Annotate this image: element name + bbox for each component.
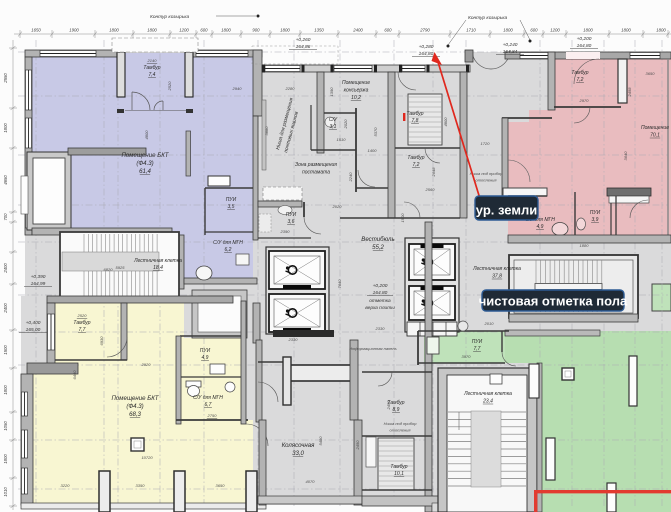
svg-text:33,0: 33,0 — [292, 450, 304, 457]
svg-text:2750: 2750 — [207, 413, 218, 418]
svg-text:ПУИ: ПУИ — [286, 212, 297, 218]
svg-text:18,4: 18,4 — [153, 265, 163, 271]
svg-text:2520: 2520 — [77, 313, 88, 318]
svg-text:10,1: 10,1 — [394, 471, 404, 477]
svg-text:2520: 2520 — [167, 81, 172, 92]
svg-text:+0,280: +0,280 — [419, 44, 434, 50]
svg-text:ПУИ: ПУИ — [226, 197, 237, 203]
svg-text:1650: 1650 — [31, 28, 41, 33]
svg-text:+0,200: +0,200 — [577, 36, 592, 42]
svg-text:4650: 4650 — [3, 175, 8, 185]
svg-text:900: 900 — [252, 28, 260, 33]
svg-text:Ниша под прибор: Ниша под прибор — [384, 421, 418, 426]
svg-text:1900: 1900 — [69, 28, 79, 33]
svg-text:3220: 3220 — [61, 483, 71, 488]
svg-text:отопления: отопления — [390, 428, 412, 433]
svg-text:2400: 2400 — [3, 303, 8, 314]
svg-text:61,4: 61,4 — [139, 168, 151, 175]
svg-text:1350: 1350 — [314, 28, 324, 33]
svg-text:1200: 1200 — [179, 28, 189, 33]
svg-text:1800: 1800 — [3, 123, 8, 133]
svg-text:Информационная панель: Информационная панель — [349, 346, 397, 351]
svg-text:2330: 2330 — [288, 337, 299, 342]
svg-text:2450: 2450 — [386, 400, 391, 411]
svg-text:Тамбур: Тамбур — [571, 70, 588, 76]
svg-text:7,8: 7,8 — [412, 118, 419, 124]
svg-text:1720: 1720 — [481, 141, 491, 146]
svg-text:верха плиты: верха плиты — [365, 306, 395, 311]
svg-text:2280: 2280 — [285, 86, 296, 91]
svg-text:4070: 4070 — [306, 479, 316, 484]
svg-text:1400: 1400 — [368, 148, 378, 153]
svg-text:5880: 5880 — [264, 126, 269, 136]
svg-text:2550: 2550 — [3, 73, 8, 84]
svg-text:3650: 3650 — [216, 483, 226, 488]
svg-text:Ниша под прибор: Ниша под прибор — [470, 171, 504, 176]
svg-text:2010: 2010 — [484, 321, 495, 326]
svg-text:2970: 2970 — [579, 98, 590, 103]
svg-text:6,2: 6,2 — [225, 247, 232, 253]
svg-text:1800: 1800 — [503, 28, 513, 33]
svg-text:1880: 1880 — [580, 243, 590, 248]
svg-text:4800: 4800 — [443, 117, 448, 127]
svg-text:37,8: 37,8 — [492, 274, 502, 280]
svg-text:5925: 5925 — [116, 265, 126, 270]
svg-text:2020: 2020 — [332, 204, 343, 209]
svg-text:постамата: постамата — [302, 170, 330, 176]
svg-text:2390: 2390 — [280, 229, 291, 234]
svg-text:Тамбур: Тамбур — [390, 464, 407, 470]
svg-text:1800: 1800 — [147, 28, 157, 33]
svg-text:3970: 3970 — [462, 354, 472, 359]
svg-text:3,9: 3,9 — [592, 217, 599, 223]
svg-text:+0,240: +0,240 — [503, 42, 518, 48]
svg-text:3350: 3350 — [136, 483, 146, 488]
svg-text:Помещение: Помещение — [641, 125, 669, 131]
svg-text:ПУИ: ПУИ — [200, 348, 211, 354]
svg-text:2790: 2790 — [419, 28, 430, 33]
svg-text:Зона размещения: Зона размещения — [295, 162, 337, 168]
svg-text:7,2: 7,2 — [413, 162, 420, 168]
svg-text:3,5: 3,5 — [228, 204, 235, 210]
svg-text:Тамбур: Тамбур — [143, 65, 160, 71]
svg-text:ур. земли: ур. земли — [476, 203, 537, 218]
svg-text:5480: 5480 — [318, 436, 323, 446]
svg-text:С/У для МГН: С/У для МГН — [193, 395, 223, 401]
svg-text:6930: 6930 — [99, 336, 104, 346]
svg-text:2400: 2400 — [3, 263, 8, 274]
svg-text:консьержа: консьержа — [344, 88, 369, 94]
svg-text:2920: 2920 — [141, 362, 152, 367]
svg-text:+0,200: +0,200 — [373, 283, 388, 289]
svg-text:(Ф4.3): (Ф4.3) — [126, 403, 143, 410]
svg-text:Тамбур: Тамбур — [407, 155, 424, 161]
svg-text:4,9: 4,9 — [202, 355, 209, 361]
svg-text:4,9: 4,9 — [537, 224, 544, 230]
svg-text:+0,400: +0,400 — [26, 320, 41, 326]
svg-text:+0,390: +0,390 — [31, 274, 46, 280]
svg-text:Лестничная клетка: Лестничная клетка — [463, 391, 512, 397]
svg-text:8,9: 8,9 — [393, 407, 400, 413]
svg-text:3,6: 3,6 — [288, 219, 295, 225]
svg-text:1800: 1800 — [656, 28, 666, 33]
svg-text:600: 600 — [384, 28, 392, 33]
svg-text:2450: 2450 — [355, 440, 360, 451]
svg-text:700: 700 — [3, 213, 8, 221]
svg-text:Тамбур: Тамбур — [406, 111, 423, 117]
svg-text:Лестничная клетка: Лестничная клетка — [472, 266, 521, 272]
svg-text:10,2: 10,2 — [351, 95, 361, 101]
svg-text:(Ф4.3): (Ф4.3) — [136, 160, 153, 167]
svg-text:164,80: 164,80 — [373, 290, 388, 296]
svg-text:7,4: 7,4 — [149, 72, 156, 78]
svg-text:чистовая отметка пола: чистовая отметка пола — [479, 294, 628, 309]
svg-text:164,80: 164,80 — [419, 51, 434, 57]
svg-text:Помещение БКТ: Помещение БКТ — [111, 395, 159, 402]
svg-text:ПУИ: ПУИ — [472, 339, 483, 345]
svg-text:10720: 10720 — [141, 455, 153, 460]
svg-text:2020: 2020 — [343, 119, 348, 130]
svg-text:Помещение: Помещение — [342, 80, 370, 86]
svg-text:1800: 1800 — [621, 28, 631, 33]
svg-text:7640: 7640 — [337, 279, 342, 289]
svg-text:4800: 4800 — [144, 130, 149, 140]
svg-text:23,4: 23,4 — [482, 399, 493, 405]
svg-text:1050: 1050 — [3, 421, 8, 431]
svg-text:Тамбур: Тамбур — [73, 320, 90, 326]
svg-text:1510: 1510 — [337, 137, 347, 142]
svg-text:Вестибюль: Вестибюль — [361, 236, 394, 243]
svg-text:600: 600 — [200, 28, 208, 33]
svg-text:68,3: 68,3 — [129, 411, 141, 418]
svg-text:7,7: 7,7 — [79, 327, 86, 333]
svg-text:6820: 6820 — [104, 267, 114, 272]
svg-text:С/У: С/У — [329, 117, 338, 123]
svg-text:7,2: 7,2 — [577, 77, 584, 83]
svg-text:3640: 3640 — [623, 151, 628, 161]
svg-text:6460: 6460 — [72, 370, 77, 380]
svg-text:1800: 1800 — [280, 28, 290, 33]
svg-text:5370: 5370 — [373, 127, 378, 137]
svg-text:2560: 2560 — [425, 187, 436, 192]
svg-text:2940: 2940 — [232, 86, 243, 91]
svg-text:3650: 3650 — [646, 71, 656, 76]
svg-text:ПУИ: ПУИ — [590, 210, 601, 216]
svg-text:55,2: 55,2 — [372, 244, 384, 251]
svg-text:2458: 2458 — [627, 87, 632, 98]
svg-text:164,86: 164,86 — [296, 44, 311, 50]
svg-text:1800: 1800 — [221, 28, 231, 33]
svg-text:165,00: 165,00 — [26, 327, 41, 333]
svg-text:3,1: 3,1 — [330, 124, 337, 130]
svg-text:600: 600 — [530, 28, 538, 33]
svg-text:Лестничная клетка: Лестничная клетка — [133, 258, 182, 264]
svg-text:1500: 1500 — [400, 213, 405, 223]
svg-text:1200: 1200 — [550, 28, 560, 33]
svg-text:1710: 1710 — [466, 28, 476, 33]
svg-text:Контур козырька: Контур козырька — [150, 14, 190, 20]
svg-text:Контур козырька: Контур козырька — [468, 15, 508, 21]
svg-text:2648: 2648 — [431, 167, 436, 178]
svg-text:С/У для МГН: С/У для МГН — [213, 240, 243, 246]
svg-text:отопления: отопления — [476, 178, 498, 183]
svg-text:1500: 1500 — [3, 345, 8, 355]
svg-text:1390: 1390 — [329, 87, 334, 97]
svg-text:2240: 2240 — [348, 172, 353, 183]
svg-text:1800: 1800 — [3, 385, 8, 395]
svg-text:+0,260: +0,260 — [296, 37, 311, 43]
svg-text:70,1: 70,1 — [650, 133, 660, 139]
svg-text:1800: 1800 — [583, 28, 593, 33]
svg-text:164,80: 164,80 — [577, 43, 592, 49]
svg-text:2140: 2140 — [147, 58, 158, 63]
svg-text:7,7: 7,7 — [474, 346, 481, 352]
svg-text:164,99: 164,99 — [31, 281, 46, 287]
svg-text:1800: 1800 — [3, 454, 8, 464]
svg-text:2330: 2330 — [375, 326, 386, 331]
svg-text:отметка: отметка — [369, 299, 391, 304]
svg-text:Помещение БКТ: Помещение БКТ — [121, 152, 169, 159]
svg-text:2400: 2400 — [352, 28, 363, 33]
svg-text:Колясочная: Колясочная — [282, 442, 316, 449]
svg-text:164,84: 164,84 — [503, 49, 518, 55]
svg-text:1010: 1010 — [3, 487, 8, 497]
svg-text:6,7: 6,7 — [205, 402, 212, 408]
svg-text:1800: 1800 — [109, 28, 119, 33]
